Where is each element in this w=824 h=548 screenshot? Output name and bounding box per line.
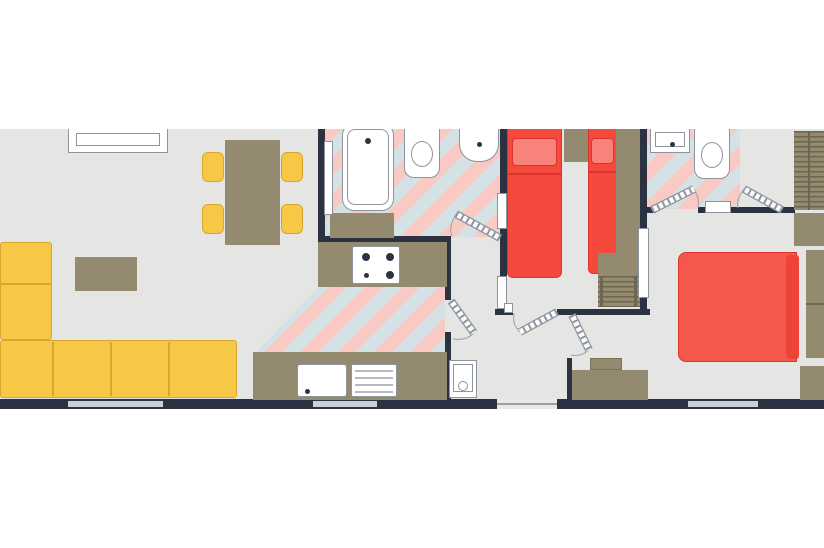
nightstand xyxy=(564,129,588,162)
screenshot xyxy=(0,0,824,548)
bottom-window-living xyxy=(68,401,163,407)
wall-twinroom-bottom-right xyxy=(557,309,650,315)
bathroom-vanity xyxy=(330,213,394,238)
drainer-line xyxy=(355,391,393,393)
hall-dresser-tab xyxy=(590,358,622,370)
sofa-chaise-divider xyxy=(1,283,51,285)
floor-plan xyxy=(0,129,824,409)
drainer-line xyxy=(355,377,393,379)
wall-showerroom-bottom-a xyxy=(646,207,656,213)
master-bench xyxy=(800,366,824,400)
bottom-window-master xyxy=(688,401,758,407)
dining-table xyxy=(225,140,280,245)
stove xyxy=(352,246,400,284)
closet-rail xyxy=(634,276,637,307)
door-panel xyxy=(638,228,649,298)
sofa-divider xyxy=(52,342,54,396)
sofa-chaise xyxy=(0,242,52,340)
headboard xyxy=(786,255,799,359)
bathtub-drain xyxy=(365,138,371,144)
dining-chair xyxy=(281,152,303,182)
washbasin-drain xyxy=(477,142,482,147)
door-panel xyxy=(324,141,333,215)
toilet-bowl xyxy=(701,142,723,168)
kitchen-counter-lower xyxy=(253,352,447,400)
wall-master-top xyxy=(740,207,782,213)
blanket-line xyxy=(508,173,561,175)
dining-chair xyxy=(281,204,303,234)
nightstand-divider xyxy=(806,303,824,305)
burner xyxy=(386,271,394,279)
shower-sink-drain xyxy=(670,142,675,147)
master-shelf xyxy=(794,213,824,246)
pillow xyxy=(512,138,557,166)
burner xyxy=(386,253,394,261)
shower-niche xyxy=(705,201,731,213)
living-window-inner xyxy=(76,133,160,146)
pillow xyxy=(591,138,614,164)
burner xyxy=(364,273,369,278)
sofa-divider xyxy=(168,342,170,396)
toilet-bowl xyxy=(411,141,433,167)
blanket-line xyxy=(589,171,616,173)
sofa-base xyxy=(0,340,237,398)
master-wardrobe-rail xyxy=(808,131,810,210)
coffee-table xyxy=(75,257,137,291)
bottom-window-kitchen xyxy=(313,401,377,407)
water-heater-dial xyxy=(458,381,468,391)
hall-dresser xyxy=(572,370,648,400)
closet-top xyxy=(598,253,640,276)
drainer-line xyxy=(355,370,393,372)
closet-rail xyxy=(600,276,603,307)
drainer-line xyxy=(355,384,393,386)
dining-chair xyxy=(202,204,224,234)
sofa-divider xyxy=(110,342,112,396)
entrance-threshold xyxy=(497,403,557,405)
door-panel xyxy=(497,193,507,229)
sink-drain xyxy=(305,389,310,394)
door-post xyxy=(504,303,513,313)
burner xyxy=(362,253,370,261)
double-bed xyxy=(678,252,797,362)
wall-showerroom-bottom-c xyxy=(731,207,740,213)
dining-chair xyxy=(202,152,224,182)
